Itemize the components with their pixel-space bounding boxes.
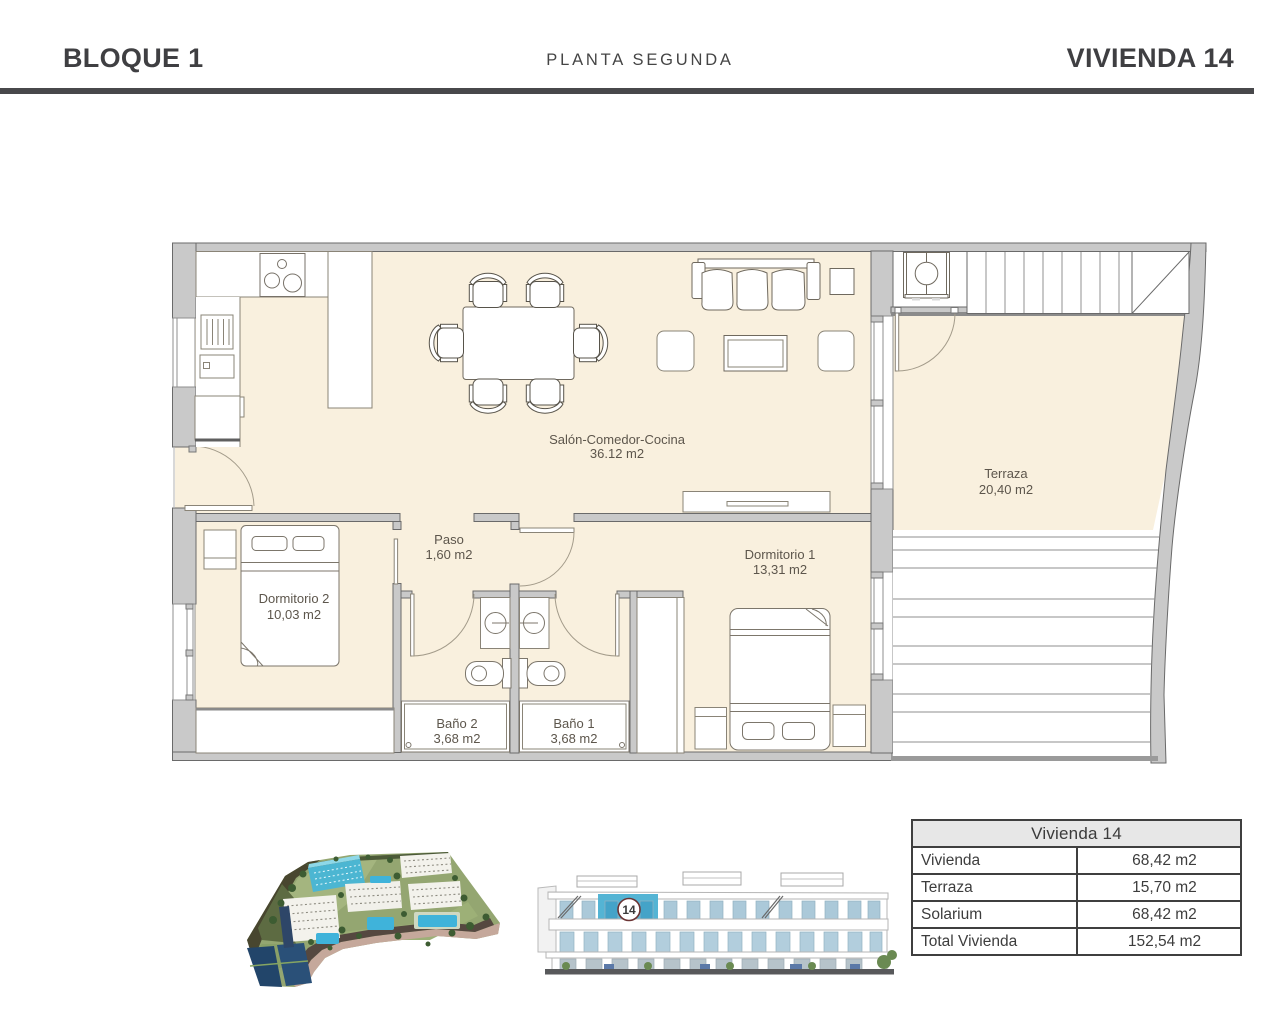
svg-text:36.12 m2: 36.12 m2: [590, 446, 644, 461]
svg-text:Salón-Comedor-Cocina: Salón-Comedor-Cocina: [549, 432, 686, 447]
svg-text:Dormitorio 2: Dormitorio 2: [259, 591, 330, 606]
svg-text:Terraza: Terraza: [984, 466, 1028, 481]
svg-text:3,68 m2: 3,68 m2: [551, 731, 598, 746]
svg-text:1,60 m2: 1,60 m2: [426, 547, 473, 562]
svg-text:14: 14: [622, 903, 636, 917]
svg-text:20,40 m2: 20,40 m2: [979, 482, 1033, 497]
svg-text:13,31 m2: 13,31 m2: [753, 562, 807, 577]
svg-text:Baño 2: Baño 2: [436, 716, 477, 731]
svg-text:Baño 1: Baño 1: [553, 716, 594, 731]
svg-text:Paso: Paso: [434, 532, 464, 547]
svg-text:3,68 m2: 3,68 m2: [434, 731, 481, 746]
svg-text:Dormitorio 1: Dormitorio 1: [745, 547, 816, 562]
svg-text:10,03 m2: 10,03 m2: [267, 607, 321, 622]
